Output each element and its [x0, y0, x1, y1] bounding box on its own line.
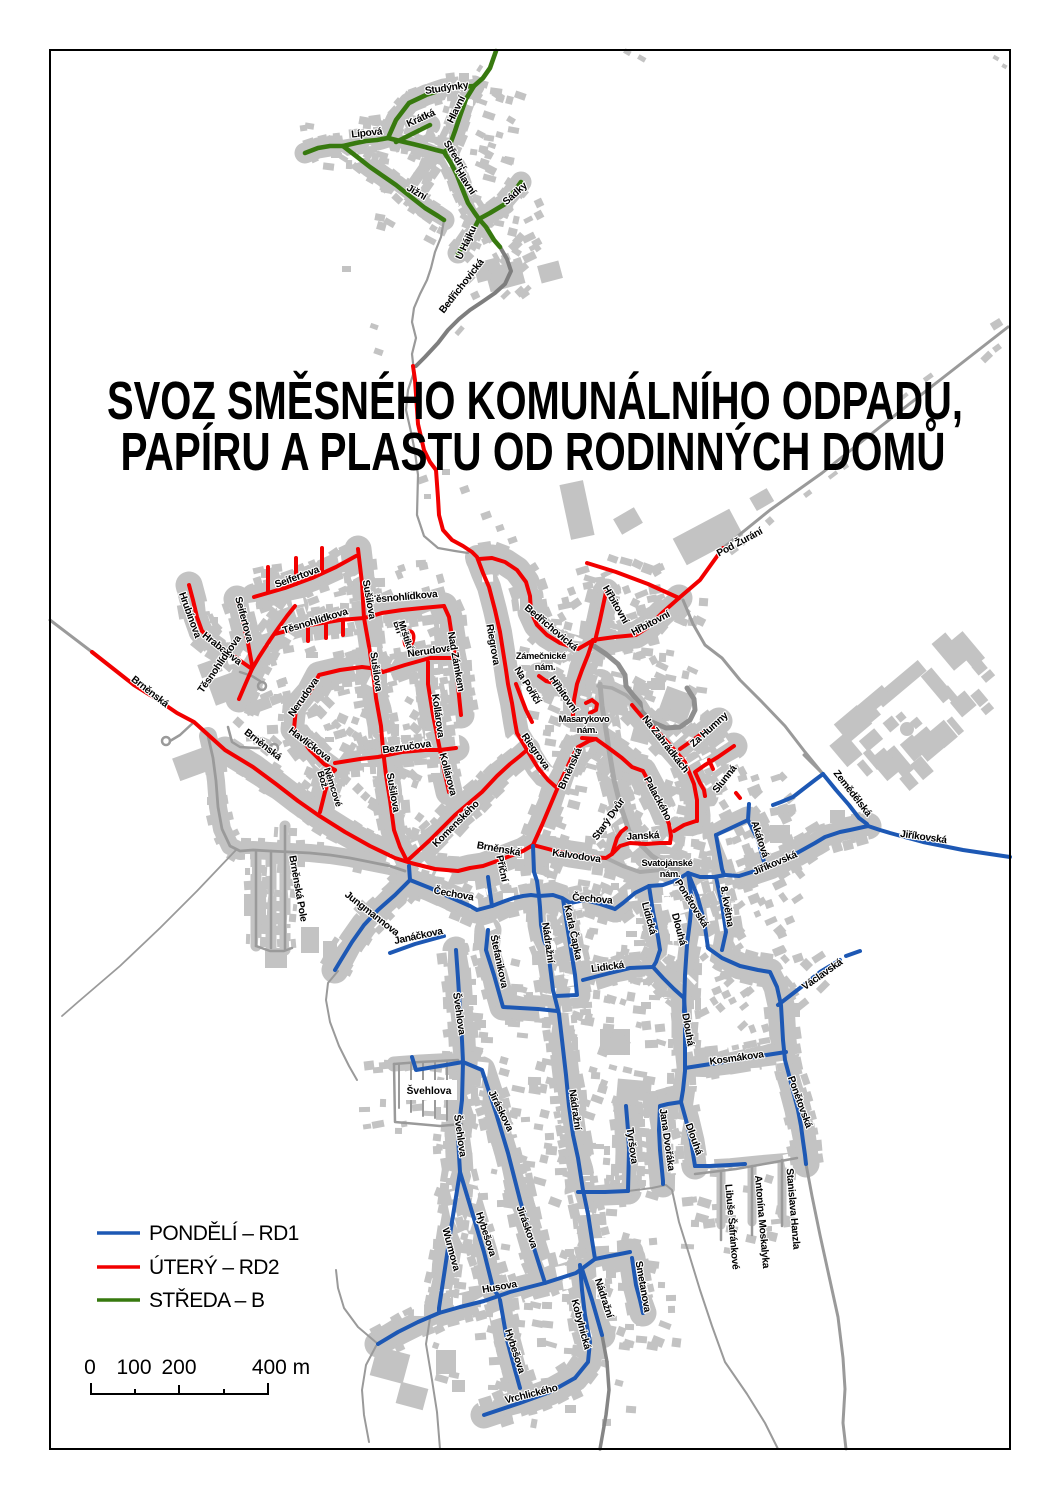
- svg-text:nám.: nám.: [660, 869, 681, 879]
- svg-text:400 m: 400 m: [252, 1356, 310, 1379]
- svg-text:Janská: Janská: [626, 830, 660, 843]
- svg-text:nám.: nám.: [535, 662, 556, 672]
- svg-text:Masarykovo: Masarykovo: [559, 714, 610, 724]
- svg-text:nám.: nám.: [577, 725, 598, 735]
- svg-text:Zámečnické: Zámečnické: [516, 651, 566, 661]
- svg-text:Svatojánské: Svatojánské: [642, 858, 693, 868]
- svg-text:PAPÍRU A PLASTU OD RODINNÝCH D: PAPÍRU A PLASTU OD RODINNÝCH DOMŮ: [121, 418, 946, 482]
- svg-text:200: 200: [161, 1356, 196, 1379]
- svg-text:ÚTERÝ – RD2: ÚTERÝ – RD2: [149, 1256, 279, 1279]
- svg-text:PONDĚLÍ – RD1: PONDĚLÍ – RD1: [149, 1222, 299, 1245]
- svg-text:100: 100: [116, 1356, 151, 1379]
- svg-text:STŘEDA – B: STŘEDA – B: [149, 1289, 264, 1312]
- svg-text:Švehlova: Švehlova: [407, 1084, 452, 1097]
- svg-text:0: 0: [84, 1356, 96, 1379]
